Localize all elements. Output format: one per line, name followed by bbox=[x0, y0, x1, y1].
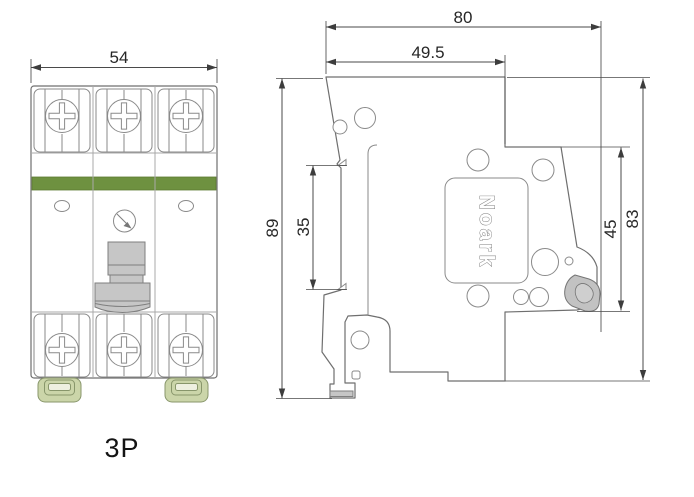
dim-83-label: 83 bbox=[623, 210, 642, 229]
din-terminal-clamp bbox=[38, 378, 81, 402]
rivet-hole bbox=[355, 108, 376, 129]
dim-45: 45 bbox=[601, 148, 624, 311]
dim-83: 83 bbox=[623, 79, 646, 381]
dim-89-label: 89 bbox=[263, 219, 282, 238]
dim-35: 35 bbox=[294, 166, 316, 290]
technical-drawing-page: 54 3P Noark bbox=[0, 0, 694, 497]
dim-89: 89 bbox=[263, 79, 285, 399]
rivet-hole bbox=[532, 159, 554, 181]
side-view: Noark 80 49.5 bbox=[263, 8, 650, 399]
dim-80-label: 80 bbox=[454, 8, 473, 27]
brand-text: Noark bbox=[475, 195, 498, 270]
dim-49-5-label: 49.5 bbox=[411, 43, 444, 62]
indicator-screw bbox=[114, 210, 136, 232]
dim-54-label: 54 bbox=[110, 48, 129, 67]
din-terminal-clamp bbox=[165, 378, 208, 402]
din-foot-bar bbox=[330, 391, 353, 397]
rivet-hole bbox=[514, 290, 529, 305]
front-nub bbox=[352, 371, 360, 379]
dim-35-label: 35 bbox=[294, 218, 313, 237]
dim-45-label: 45 bbox=[601, 220, 620, 239]
mcb-dimension-drawing: 54 3P Noark bbox=[0, 0, 694, 497]
dim-80: 80 bbox=[326, 8, 601, 30]
rivet-hole bbox=[467, 285, 489, 307]
vent-hole bbox=[55, 201, 70, 212]
pivot-hole bbox=[532, 249, 559, 276]
front-view: 54 3P bbox=[31, 48, 217, 463]
rivet-hole bbox=[333, 120, 347, 134]
green-band bbox=[32, 177, 216, 190]
rivet-hole bbox=[467, 149, 489, 171]
vent-hole bbox=[179, 201, 194, 212]
rivet-hole bbox=[351, 331, 369, 349]
rivet-hole bbox=[530, 288, 549, 307]
pole-count-label: 3P bbox=[104, 433, 139, 463]
small-hole bbox=[565, 257, 573, 265]
dim-49-5: 49.5 bbox=[326, 43, 505, 65]
dim-54: 54 bbox=[31, 48, 217, 83]
